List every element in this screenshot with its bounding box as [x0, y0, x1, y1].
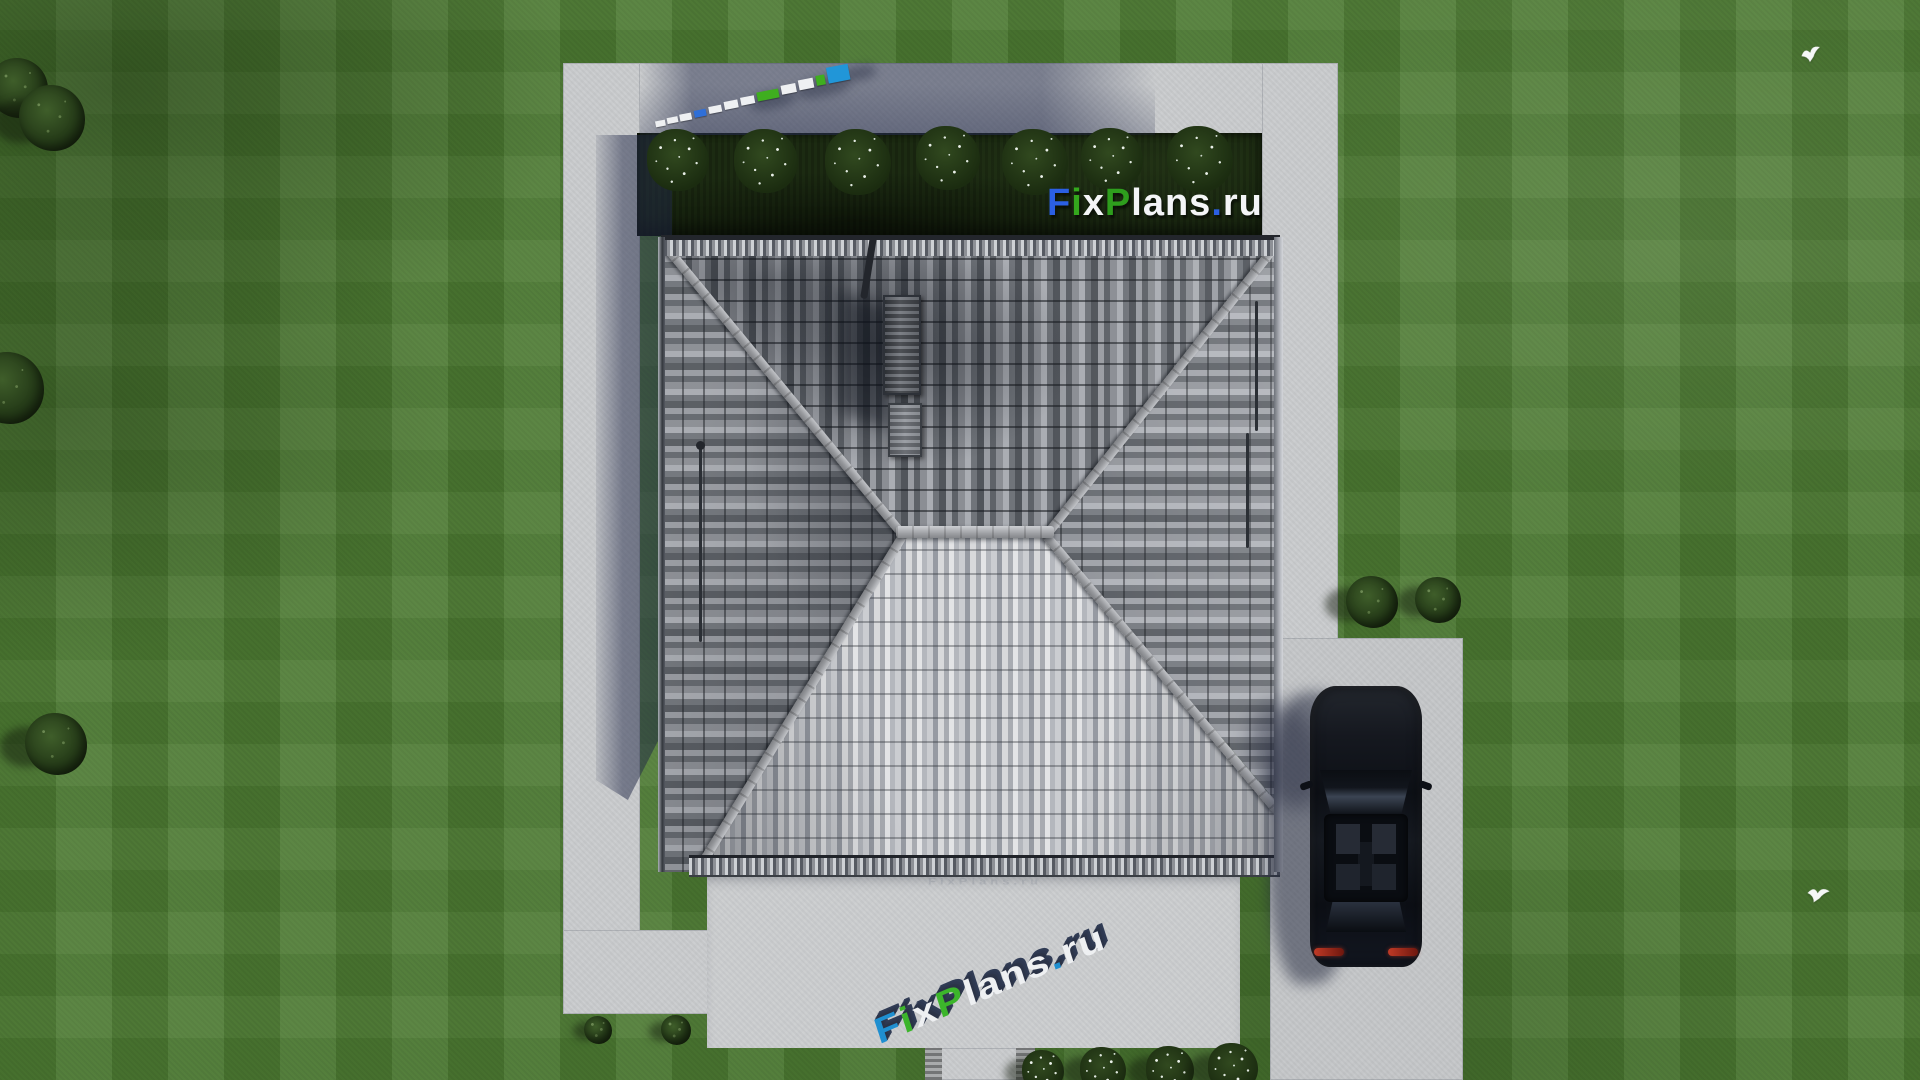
- logo-letter: lans: [1131, 182, 1211, 224]
- hedge-flowering-bush: [1081, 128, 1143, 190]
- car-windshield: [1320, 770, 1412, 816]
- car-sunroof-cabin: [1324, 814, 1408, 902]
- hedge-flowering-bush: [916, 126, 980, 190]
- logo-letter: ru: [1223, 182, 1263, 224]
- logo-strip-block: [780, 83, 796, 95]
- car-taillight: [1388, 948, 1418, 956]
- logo-strip-block: [655, 120, 666, 128]
- aerial-render-stage: FixPlans.ru FixPlans.ru FixPlans.ru: [0, 0, 1920, 1080]
- eave-gutter-top: [661, 235, 1280, 256]
- logo-strip-block: [798, 78, 815, 91]
- gravel-strip: [925, 1048, 942, 1080]
- faint-watermark-text: FixPlans.ru: [928, 876, 1042, 887]
- logo-strip-block: [724, 99, 739, 110]
- bird-icon: [1797, 42, 1825, 65]
- logo-letter: .: [1211, 182, 1223, 224]
- logo-strip-block: [826, 64, 851, 84]
- eave-gutter-bottom: [689, 855, 1280, 877]
- logo-strip-block: [694, 109, 707, 118]
- logo-letter: x: [1083, 182, 1105, 224]
- small-shrub: [584, 1016, 612, 1044]
- logo-letter: F: [1047, 182, 1071, 224]
- fixplans-logo: FixPlans.ru: [1047, 184, 1263, 222]
- path-left-bottom: [563, 930, 710, 1014]
- hedge-flowering-bush: [734, 129, 798, 193]
- parked-car: [1310, 686, 1422, 967]
- logo-strip-block: [815, 74, 826, 86]
- small-shrub: [661, 1015, 691, 1045]
- car-taillight: [1314, 948, 1344, 956]
- hedge-flowering-bush: [647, 129, 709, 191]
- shrub: [1415, 577, 1461, 623]
- car-rear-window: [1326, 902, 1406, 932]
- chimney-shadow: [839, 291, 889, 429]
- logo-strip-block: [740, 95, 755, 106]
- roof-vent: [888, 403, 922, 457]
- main-ridge: [896, 526, 1054, 538]
- logo-strip-block: [667, 116, 679, 124]
- shrub: [1346, 576, 1398, 628]
- logo-strip-block: [708, 105, 722, 114]
- logo-strip-block: [756, 88, 779, 101]
- hedge-flowering-bush: [825, 129, 891, 195]
- snow-guard: [699, 447, 702, 642]
- hip-roof: [661, 237, 1280, 872]
- logo-letter: P: [1105, 182, 1131, 224]
- tree: [19, 85, 85, 151]
- logo-strip-block: [679, 112, 692, 121]
- chimney: [883, 295, 921, 395]
- eave-edge-left: [658, 237, 665, 872]
- patio: [707, 875, 1240, 1048]
- snow-guard: [1246, 433, 1249, 548]
- snow-guard: [1255, 301, 1258, 431]
- logo-letter: i: [1071, 182, 1083, 224]
- tree: [25, 713, 87, 775]
